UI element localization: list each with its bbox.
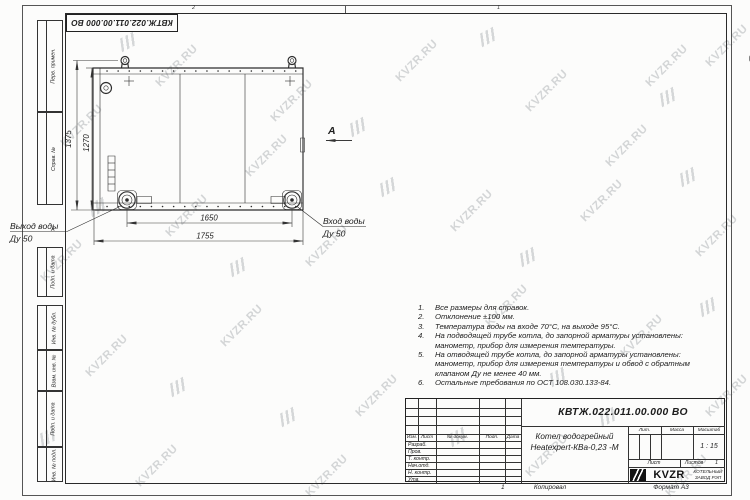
lifting-lugs [101, 57, 297, 94]
scale-label: Масштаб [693, 426, 725, 434]
note-item: 1. Все размеры для справок. [415, 303, 730, 312]
lit-label: Лит. [628, 426, 661, 434]
bottom-zone-number: 1 [501, 484, 505, 491]
outlet-flange [118, 191, 152, 210]
dim-1755: 1755 [196, 232, 214, 241]
inlet-callout: Вход воды Ду 50 [297, 207, 366, 239]
zone-divider [345, 5, 346, 13]
side-bracket [108, 156, 115, 191]
dim-1375: 1375 [64, 130, 73, 148]
scale-value: 1 : 15 [693, 434, 725, 459]
technical-notes: 1. Все размеры для справок. 2. Отклонени… [415, 303, 730, 388]
title-block: КВТЖ.022.011.00.000 ВО Изм. Лист № докум… [405, 398, 725, 482]
sheet-label: Лист [628, 459, 680, 467]
row-nkontr: Н. контр. [406, 469, 438, 476]
corner-stamp: КВТЖ.022.011.00.000 ВО [66, 14, 178, 32]
margin-label: Взам. инв. № [51, 354, 57, 387]
dim-1650: 1650 [200, 214, 218, 223]
company-caption: КОТЕЛЬНЫЙ ЗАВОД РЭП [691, 468, 725, 482]
view-arrow-label: А [327, 125, 336, 137]
product-name: Котел водогрейный Heatexpert-КВа-0,23 -М [522, 428, 627, 458]
view-direction-arrow: А [326, 125, 352, 141]
margin-label: Подп. и дата [51, 402, 57, 435]
note-item: 5. На отводящей трубе котла, до запорной… [415, 350, 730, 378]
note-item: 3. Температура воды на входе 70°С, на вы… [415, 322, 730, 331]
inlet-label: Вход воды [323, 216, 365, 226]
copied-label: Копировал [515, 484, 585, 491]
crosshair-marks [124, 76, 295, 86]
sheets-value: 1 [708, 459, 725, 467]
col-podp: Подп. [479, 434, 505, 441]
outlet-dn: Ду 50 [9, 234, 33, 244]
outlet-callout: Выход воды Ду 50 [9, 206, 122, 244]
plan-view: 735 [739, 15, 750, 233]
inlet-dn: Ду 50 [322, 229, 346, 239]
margin-label: Инв. № подл. [51, 448, 57, 481]
outlet-label: Выход воды [10, 221, 59, 231]
col-docnum: № докум. [436, 434, 479, 441]
zone-number-right: 1 [497, 5, 500, 11]
row-utv: Утв. [406, 476, 438, 483]
zone-number-left: 2 [192, 5, 195, 11]
col-izm: Изм. [406, 434, 418, 441]
format-label: Формат А3 [636, 484, 706, 491]
row-nachotd: Нач.отд. [406, 462, 438, 469]
kvzr-logo-icon [630, 469, 646, 481]
margin-label: Инв. № дубл. [51, 311, 57, 344]
note-item: 4. На подводящей трубе котла, до запорно… [415, 331, 730, 350]
margin-box-inv-podl: Инв. № подл. [37, 447, 63, 482]
drawing-sheet: KVZR.RUKVZR.RUKVZR.RUKVZR.RUKVZR.RUKVZR.… [0, 0, 750, 500]
col-data: Дата [505, 434, 521, 441]
margin-box-vzam-inv: Взам. инв. № [37, 350, 63, 391]
row-razrab: Разраб. [406, 441, 438, 448]
doc-number: КВТЖ.022.011.00.000 ВО [521, 399, 725, 426]
boiler-body-outline [93, 68, 305, 210]
row-tkontr: Т. контр. [406, 455, 438, 462]
margin-box-inv-dubl: Инв. № дубл. [37, 305, 63, 350]
note-item: 6. Остальные требования по ОСТ 108.030.1… [415, 378, 730, 387]
dim-1270: 1270 [82, 134, 91, 152]
company-name: KVZR [647, 467, 691, 483]
front-view: 1375 1270 1650 1755 Выход воды Ду 50 Вхо… [5, 53, 370, 258]
note-item: 2. Отклонение ±100 мм. [415, 312, 730, 321]
margin-box-podp-data-2: Подп. и дата [37, 391, 63, 447]
mass-label: Масса [661, 426, 693, 434]
sheets-label: Листов [680, 459, 708, 467]
row-prov: Пров. [406, 448, 438, 455]
margin-label: Подп. и дата [51, 255, 57, 288]
col-list: Лист [418, 434, 436, 441]
